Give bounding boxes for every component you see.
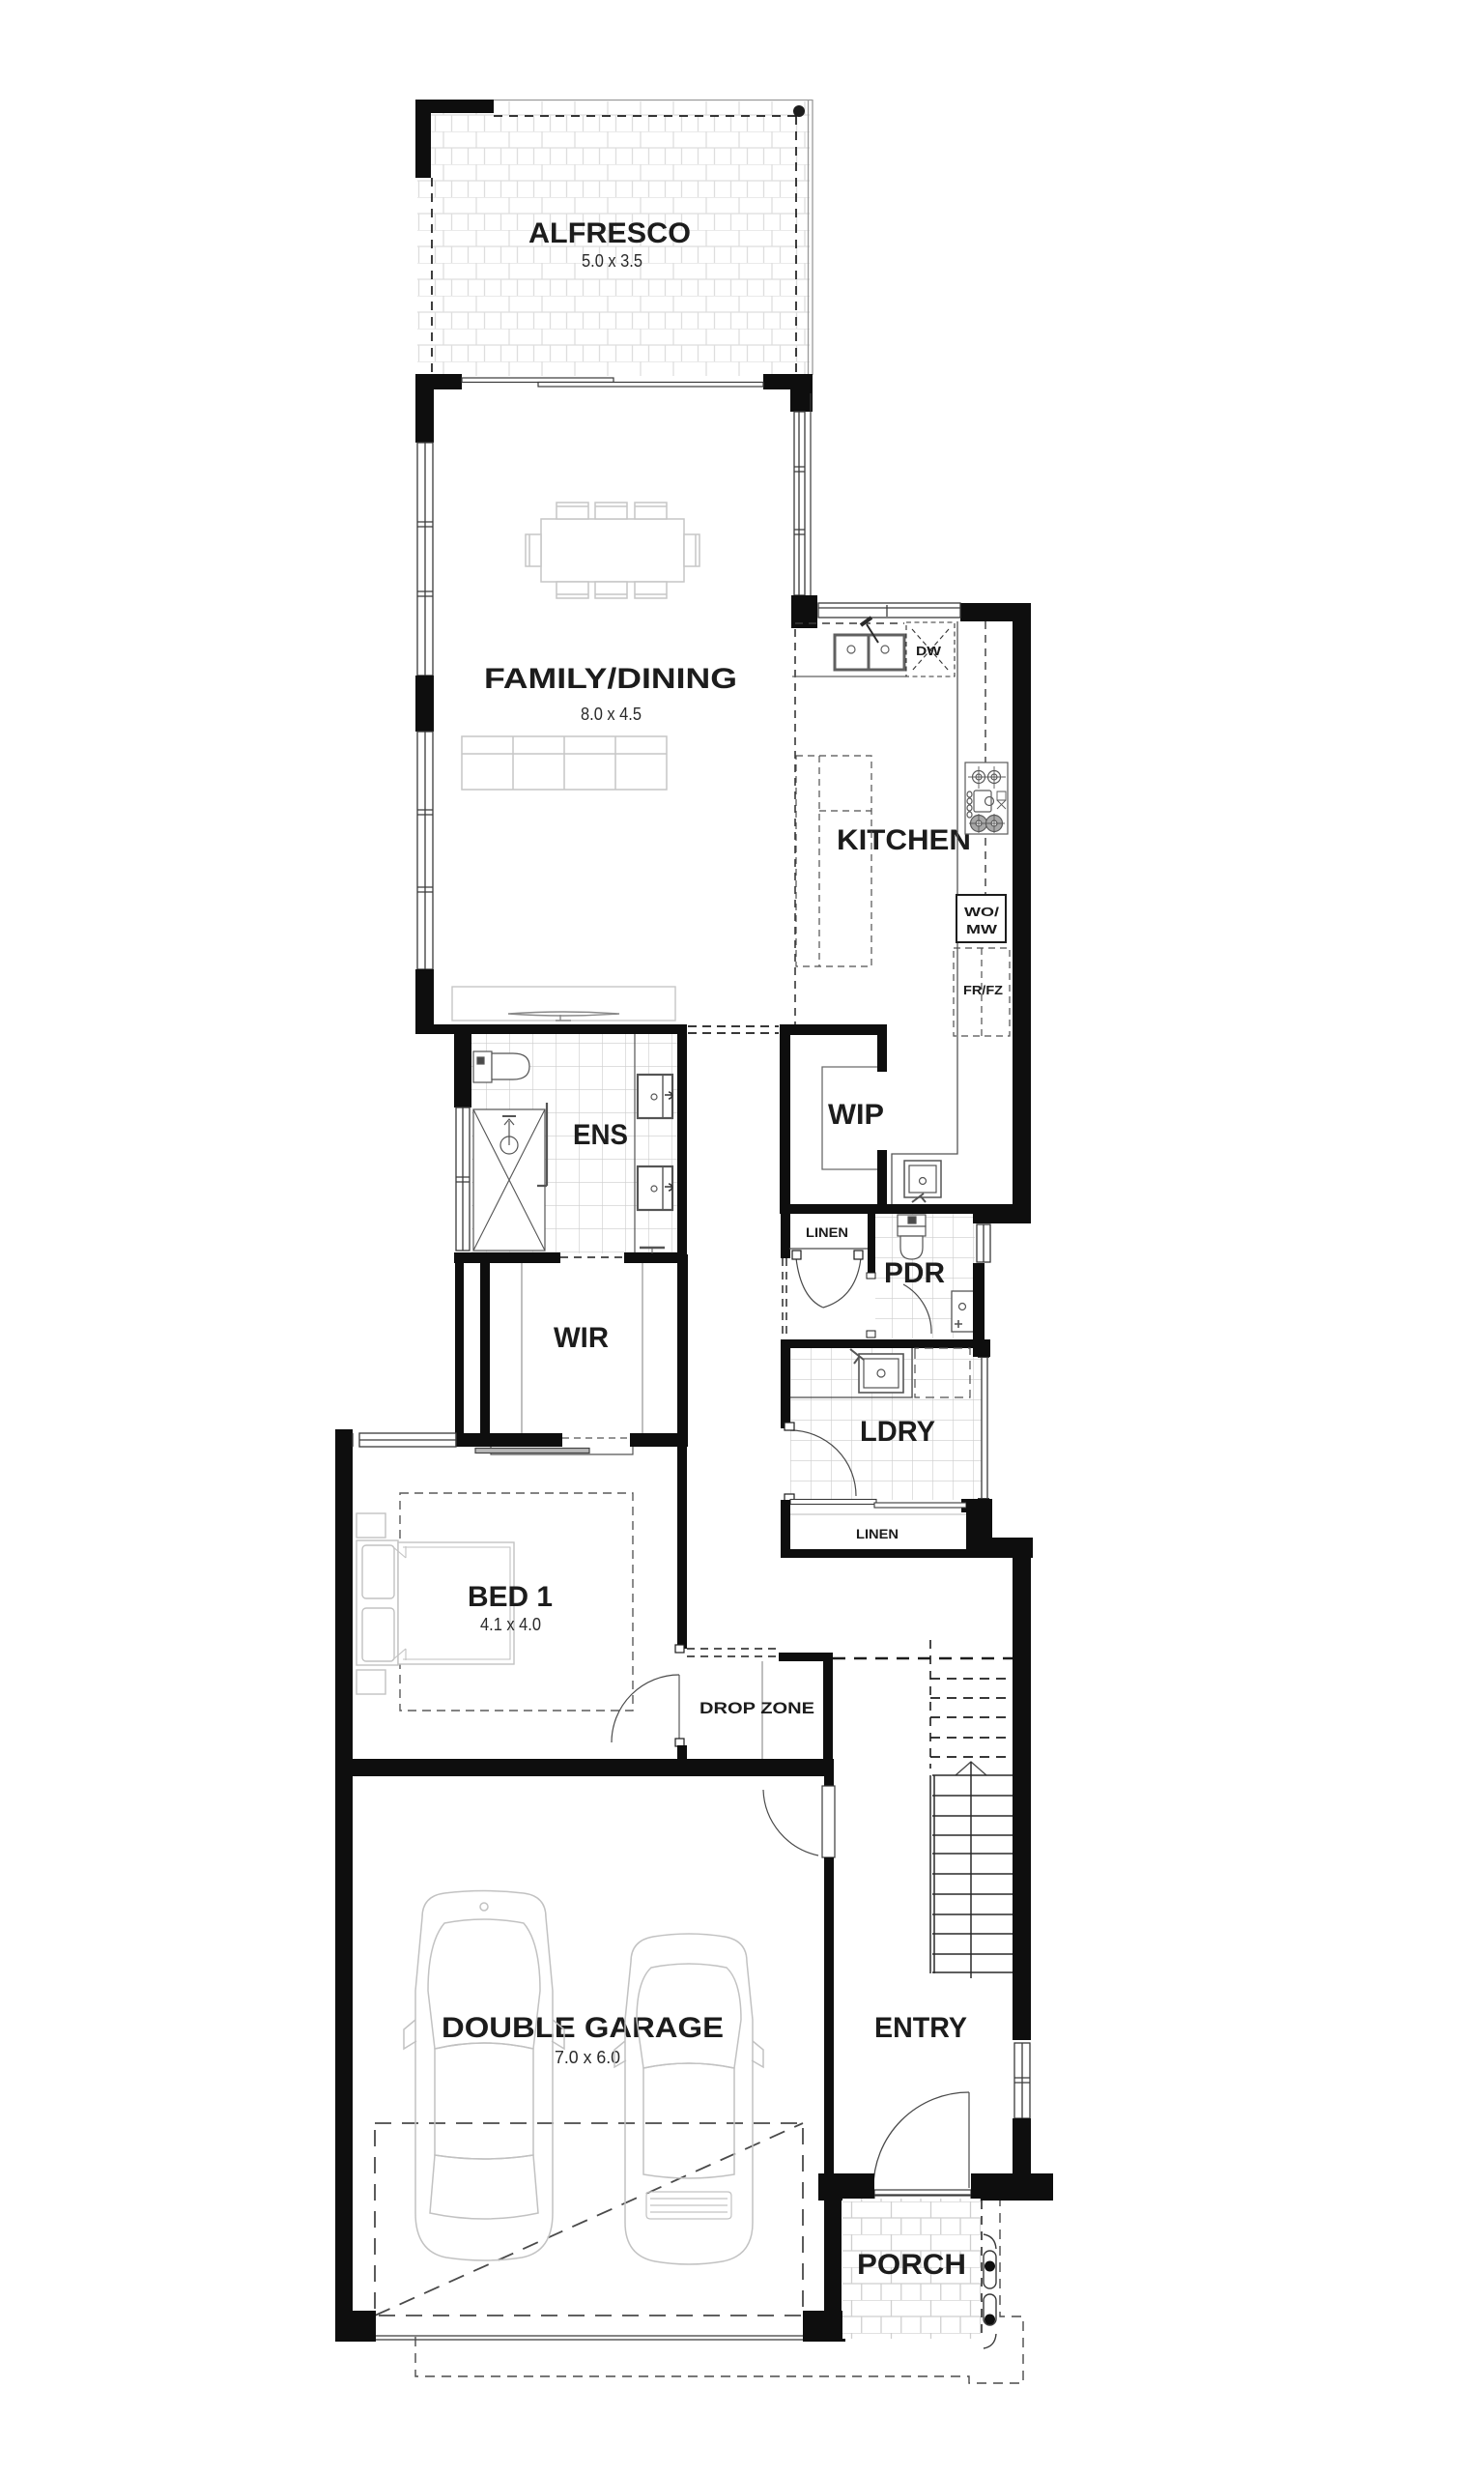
svg-text:KITCHEN: KITCHEN — [837, 824, 971, 856]
svg-text:LDRY: LDRY — [860, 1416, 935, 1448]
svg-text:DROP ZONE: DROP ZONE — [699, 1699, 814, 1717]
svg-text:WO/: WO/ — [964, 905, 1000, 919]
svg-text:ALFRESCO: ALFRESCO — [528, 217, 691, 249]
svg-text:PDR: PDR — [884, 1257, 945, 1289]
svg-text:DW: DW — [916, 644, 942, 658]
svg-text:FAMILY/DINING: FAMILY/DINING — [484, 663, 737, 695]
svg-text:ENTRY: ENTRY — [874, 2012, 967, 2044]
svg-text:4.1 x 4.0: 4.1 x 4.0 — [480, 1615, 541, 1634]
svg-text:WIP: WIP — [828, 1099, 884, 1131]
svg-text:5.0 x 3.5: 5.0 x 3.5 — [582, 251, 642, 271]
svg-text:PORCH: PORCH — [857, 2249, 966, 2281]
svg-text:DOUBLE GARAGE: DOUBLE GARAGE — [442, 2012, 724, 2044]
svg-text:WIR: WIR — [554, 1322, 609, 1354]
svg-text:MW: MW — [966, 922, 998, 936]
svg-text:8.0 x 4.5: 8.0 x 4.5 — [581, 705, 642, 724]
svg-text:ENS: ENS — [573, 1119, 628, 1151]
svg-text:BED 1: BED 1 — [468, 1581, 553, 1613]
svg-text:FR/FZ: FR/FZ — [963, 983, 1003, 997]
svg-text:LINEN: LINEN — [856, 1526, 899, 1541]
svg-text:7.0 x 6.0: 7.0 x 6.0 — [555, 2048, 620, 2067]
svg-text:LINEN: LINEN — [806, 1224, 848, 1240]
